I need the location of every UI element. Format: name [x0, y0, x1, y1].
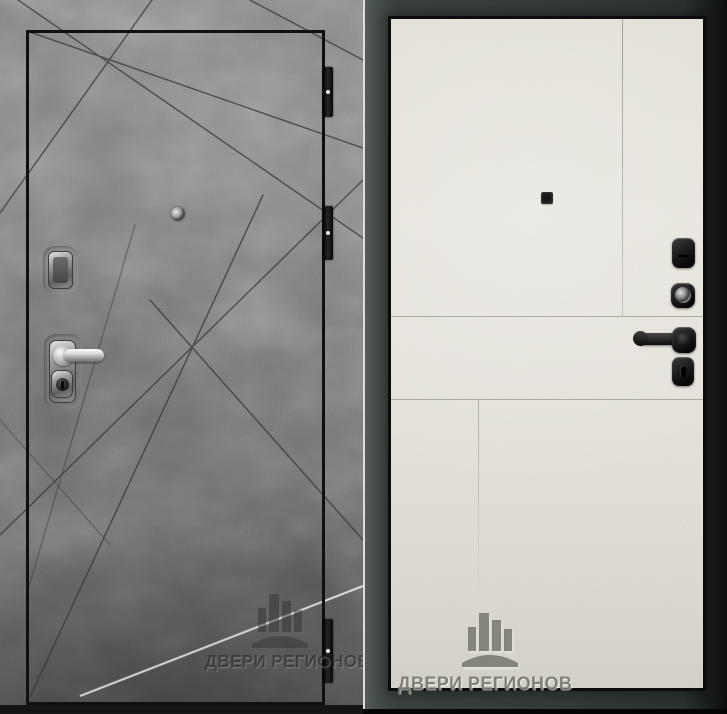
- handle-rose: [672, 327, 696, 353]
- panel-seam-vertical-bottom: [478, 400, 479, 600]
- keyhole-cylinder-icon: [675, 287, 691, 303]
- front-view-photo: ДВЕРИ РЕГИОНОВ: [0, 0, 363, 714]
- watermark-back: ДВЕРИ РЕГИОНОВ: [395, 605, 575, 701]
- floor-shadow-strip: [0, 705, 363, 714]
- door-product-photo: ДВЕРИ РЕГИОНОВ: [0, 0, 727, 714]
- round-keyhole: [671, 283, 695, 308]
- door-inner-panel: ДВЕРИ РЕГИОНОВ: [391, 19, 703, 688]
- panel-grain-overlay: [391, 19, 703, 688]
- thumb-turn-lock: [672, 357, 694, 386]
- bottom-black-strip: [363, 709, 727, 714]
- watermark-text: ДВЕРИ РЕГИОНОВ: [395, 672, 575, 694]
- hinge-middle: [323, 206, 333, 260]
- hinge-top: [323, 67, 333, 117]
- watermark-logo-icon: [458, 605, 522, 669]
- key-cylinder: [51, 370, 73, 398]
- hinge-bottom: [323, 619, 333, 683]
- panel-seam-horizontal-1: [391, 316, 703, 317]
- photo-edge-sliver: [363, 0, 365, 714]
- keyhole-icon: [56, 378, 69, 391]
- door-handle-front: [64, 349, 104, 362]
- flip-lock-cover: [672, 238, 695, 268]
- peephole-back: [541, 192, 553, 204]
- top-lock-cover: [48, 251, 73, 289]
- panel-seam-vertical-top: [622, 19, 623, 316]
- peephole-front: [171, 207, 185, 221]
- panel-seam-horizontal-2: [391, 399, 703, 400]
- back-view-photo: ДВЕРИ РЕГИОНОВ: [363, 0, 727, 714]
